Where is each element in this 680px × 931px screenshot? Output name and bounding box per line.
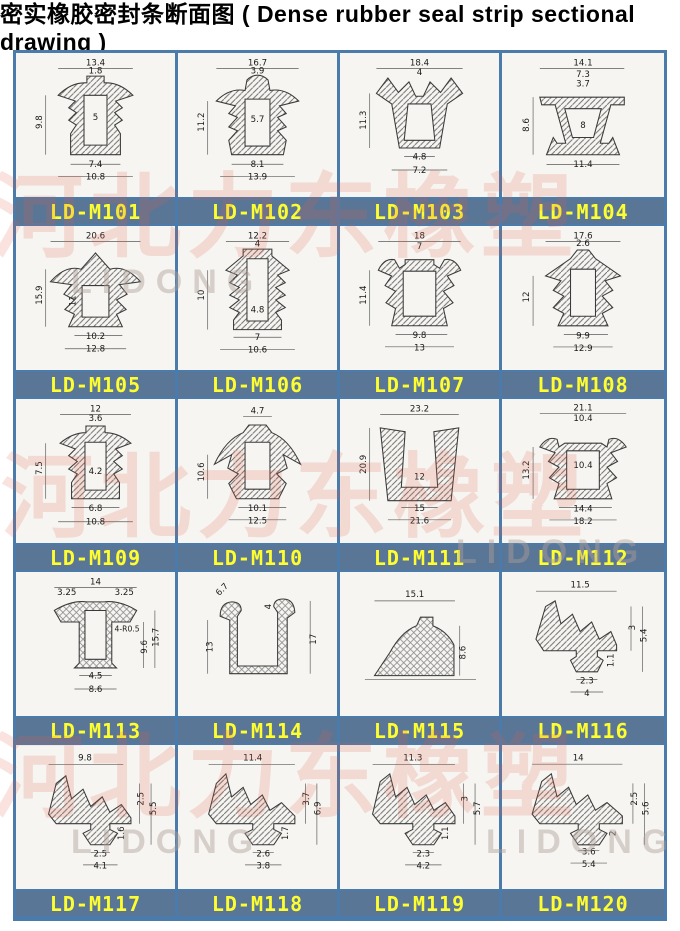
- dimension-label: 18.2: [573, 517, 592, 527]
- dimension-label: 7.5: [35, 461, 45, 475]
- dimension-label: 3.25: [115, 588, 134, 598]
- dimension-label: 15: [414, 504, 425, 514]
- dimension-label: 7: [255, 333, 260, 343]
- model-label: LD-M115: [374, 719, 465, 743]
- model-label: LD-M104: [537, 200, 628, 224]
- dimension-label: 7: [417, 242, 422, 252]
- dimension-label: 3: [460, 796, 470, 801]
- seal-profile-drawing: 143.253.2515.74-R0.59.64.58.6: [16, 572, 175, 716]
- seal-profile-shape: [380, 428, 459, 501]
- dimension-label: 6.8: [89, 504, 103, 514]
- model-label-bar-LD-M109: LD-M109: [16, 543, 178, 572]
- seal-profile-drawing: 11.535.41.12.34: [502, 572, 664, 716]
- dimension-label: 21.6: [410, 517, 429, 527]
- model-label: LD-M119: [374, 892, 465, 916]
- model-label-bar-LD-M116: LD-M116: [502, 716, 664, 745]
- drawing-cell-LD-M106: 12.24104.8710.6: [178, 226, 340, 370]
- dimension-label: 5.5: [149, 802, 159, 816]
- dimension-label: 11.5: [571, 580, 590, 590]
- model-label-bar-LD-M120: LD-M120: [502, 889, 664, 918]
- dimension-label: 12.8: [86, 345, 105, 355]
- model-label: LD-M103: [374, 200, 465, 224]
- dimension-label: 2.6: [576, 239, 590, 249]
- dimension-label: 3.7: [576, 80, 590, 90]
- model-label-bar-LD-M119: LD-M119: [340, 889, 502, 918]
- model-label-bar-LD-M110: LD-M110: [178, 543, 340, 572]
- seal-profile-drawing: 9.82.55.51.62.54.1: [16, 745, 175, 889]
- dimension-label: 11.4: [573, 160, 592, 170]
- seal-profile-drawing: 15.18.6: [340, 572, 499, 716]
- model-label-bar-LD-M107: LD-M107: [340, 370, 502, 399]
- model-label-bar-LD-M108: LD-M108: [502, 370, 664, 399]
- seal-profile-drawing: 6.741317: [178, 572, 337, 716]
- drawing-cell-LD-M119: 11.335.71.12.34.2: [340, 745, 502, 889]
- dimension-label: 2.5: [136, 792, 146, 806]
- dimension-label: 12.5: [248, 517, 267, 527]
- dimension-label: 4.2: [416, 862, 430, 872]
- dimension-label: 3.6: [582, 847, 596, 857]
- dimension-label: 14.1: [573, 58, 592, 68]
- dimension-label: 12: [90, 405, 101, 415]
- dimension-label: 3: [628, 625, 638, 631]
- model-label-bar-LD-M102: LD-M102: [178, 197, 340, 226]
- dimension-label: 12.9: [573, 344, 592, 354]
- seal-profile-drawing: 11.43.76.91.72.63.8: [178, 745, 337, 889]
- drawing-cell-LD-M110: 4.710.610.112.5: [178, 399, 340, 543]
- page-title: 密实橡胶密封条断面图 ( Dense rubber seal strip sec…: [0, 0, 680, 50]
- dimension-label: 4-R0.5: [115, 625, 140, 634]
- drawing-cell-LD-M116: 11.535.41.12.34: [502, 572, 664, 716]
- dimension-label: 14: [573, 753, 584, 763]
- dimension-label: 6.9: [314, 802, 324, 816]
- dimension-label: 8: [580, 121, 586, 131]
- dimension-label: 9.8: [413, 331, 427, 341]
- dimension-label: 11.4: [359, 286, 369, 305]
- dimension-label: 1.1: [441, 826, 451, 840]
- dimension-label: 3.9: [251, 66, 265, 76]
- dimension-label: 15.1: [405, 590, 424, 600]
- drawing-cell-LD-M114: 6.741317: [178, 572, 340, 716]
- seal-profile-drawing: 21.110.413.210.414.418.2: [502, 399, 664, 543]
- seal-profile-shape: [220, 599, 295, 674]
- dimension-label: 4: [417, 68, 422, 78]
- model-label-bar-LD-M104: LD-M104: [502, 197, 664, 226]
- seal-profile-drawing: 13.41.89.857.410.8: [16, 53, 175, 197]
- drawing-cell-LD-M120: 142.55.623.65.4: [502, 745, 664, 889]
- seal-profile-drawing: 17.62.6129.912.9: [502, 226, 664, 370]
- dimension-label: 7.3: [576, 70, 590, 80]
- dimension-label: 14: [90, 578, 101, 588]
- dimension-label: 13.2: [522, 460, 532, 479]
- model-label: LD-M120: [537, 892, 628, 916]
- model-label-bar-LD-M114: LD-M114: [178, 716, 340, 745]
- dimension-label: 4: [584, 689, 590, 699]
- seal-profile-drawing: 16.73.911.25.78.113.9: [178, 53, 337, 197]
- drawing-cell-LD-M108: 17.62.6129.912.9: [502, 226, 664, 370]
- dimension-label: 11.2: [197, 113, 207, 132]
- dimension-label: 10.8: [86, 173, 105, 183]
- drawing-cell-LD-M105: 20.615.91110.212.8: [16, 226, 178, 370]
- dimension-label: 10.6: [197, 462, 207, 481]
- dimension-label: 2.5: [630, 792, 640, 806]
- seal-profile-drawing: 20.615.91110.212.8: [16, 226, 175, 370]
- dimension-label: 3.6: [89, 414, 103, 424]
- drawing-cell-LD-M112: 21.110.413.210.414.418.2: [502, 399, 664, 543]
- dimension-label: 2.3: [580, 676, 594, 686]
- seal-profile-drawing: 18711.49.813: [340, 226, 499, 370]
- drawing-cell-LD-M117: 9.82.55.51.62.54.1: [16, 745, 178, 889]
- dimension-label: 5: [93, 113, 98, 123]
- dimension-label: 1.6: [117, 826, 127, 840]
- dimension-label: 5.7: [473, 802, 483, 816]
- model-label: LD-M111: [374, 546, 465, 570]
- model-label-bar-LD-M115: LD-M115: [340, 716, 502, 745]
- dimension-label: 23.2: [410, 405, 429, 415]
- dimension-label: 1.1: [607, 653, 617, 667]
- drawing-cell-LD-M103: 18.4411.34.87.2: [340, 53, 502, 197]
- seal-profile-shape: [226, 249, 289, 329]
- dimension-label: 6.7: [214, 582, 231, 599]
- dimension-label: 1.8: [89, 66, 103, 76]
- drawing-cell-LD-M113: 143.253.2515.74-R0.59.64.58.6: [16, 572, 178, 716]
- dimension-label: 4.8: [413, 152, 427, 162]
- dimension-label: 18: [414, 232, 425, 242]
- drawing-cell-LD-M115: 15.18.6: [340, 572, 502, 716]
- dimension-label: 7.4: [89, 160, 103, 170]
- dimension-label: 5.4: [639, 629, 649, 643]
- dimension-label: 2.5: [93, 849, 107, 859]
- dimension-label: 15.7: [152, 628, 162, 647]
- seal-profile-shape: [376, 78, 462, 148]
- drawing-cell-LD-M111: 23.220.9121521.6: [340, 399, 502, 543]
- dimension-label: 4: [264, 604, 274, 609]
- drawing-cell-LD-M104: 14.17.33.78.6811.4: [502, 53, 664, 197]
- dimension-label: 12: [522, 292, 532, 303]
- dimension-label: 17: [309, 634, 319, 645]
- dimension-label: 11.3: [359, 111, 369, 130]
- seal-profile-drawing: 23.220.9121521.6: [340, 399, 499, 543]
- model-label: LD-M116: [537, 719, 628, 743]
- dimension-label: 9.6: [140, 640, 150, 654]
- seal-profile-drawing: 4.710.610.112.5: [178, 399, 337, 543]
- dimension-label: 8.6: [522, 118, 532, 132]
- dimension-label: 2.6: [256, 849, 270, 859]
- dimension-label: 3.7: [302, 792, 312, 806]
- model-label: LD-M105: [50, 373, 141, 397]
- dimension-label: 21.1: [573, 404, 592, 414]
- seal-profile-shape: [536, 601, 617, 672]
- seal-profile-shape: [50, 253, 140, 327]
- dimension-label: 9.8: [35, 115, 45, 129]
- dimension-label: 10.1: [248, 504, 267, 514]
- seal-profile-shape: [214, 425, 300, 499]
- seal-profile-shape: [60, 426, 131, 499]
- seal-profile-drawing: 18.4411.34.87.2: [340, 53, 499, 197]
- model-label-bar-LD-M106: LD-M106: [178, 370, 340, 399]
- dimension-label: 3.25: [57, 588, 76, 598]
- model-label: LD-M117: [50, 892, 141, 916]
- seal-profile-shape: [54, 602, 136, 668]
- dimension-label: 4: [255, 239, 260, 249]
- model-label: LD-M112: [537, 546, 628, 570]
- model-label: LD-M102: [212, 200, 303, 224]
- dimension-label: 10: [197, 290, 207, 301]
- model-label-bar-LD-M113: LD-M113: [16, 716, 178, 745]
- model-label: LD-M110: [212, 546, 303, 570]
- model-label-bar-LD-M117: LD-M117: [16, 889, 178, 918]
- dimension-label: 8.1: [251, 160, 265, 170]
- model-label-bar-LD-M118: LD-M118: [178, 889, 340, 918]
- model-label: LD-M108: [537, 373, 628, 397]
- dimension-label: 8.6: [89, 685, 103, 695]
- dimension-label: 12: [414, 473, 425, 483]
- dimension-label: 10.4: [573, 461, 592, 471]
- dimension-label: 4.5: [89, 671, 103, 681]
- seal-profile-shape: [378, 259, 460, 325]
- model-label: LD-M114: [212, 719, 303, 743]
- seal-profile-drawing: 11.335.71.12.34.2: [340, 745, 499, 889]
- seal-profile-drawing: 123.67.54.26.810.8: [16, 399, 175, 543]
- dimension-label: 7.2: [413, 166, 427, 176]
- catalog-grid: 13.41.89.857.410.816.73.911.25.78.113.91…: [13, 50, 667, 921]
- seal-profile-drawing: 14.17.33.78.6811.4: [502, 53, 664, 197]
- model-label: LD-M113: [50, 719, 141, 743]
- dimension-label: 2: [609, 831, 619, 837]
- drawing-cell-LD-M109: 123.67.54.26.810.8: [16, 399, 178, 543]
- dimension-label: 5.6: [641, 802, 651, 816]
- dimension-label: 4.8: [251, 305, 265, 315]
- drawing-cell-LD-M101: 13.41.89.857.410.8: [16, 53, 178, 197]
- dimension-label: 14.4: [573, 504, 592, 514]
- seal-profile-drawing: 12.24104.8710.6: [178, 226, 337, 370]
- model-label-bar-LD-M101: LD-M101: [16, 197, 178, 226]
- drawing-cell-LD-M118: 11.43.76.91.72.63.8: [178, 745, 340, 889]
- dimension-label: 15.9: [35, 286, 45, 305]
- dimension-label: 4.7: [251, 407, 265, 417]
- model-label: LD-M101: [50, 200, 141, 224]
- dimension-label: 10.8: [86, 518, 105, 528]
- dimension-label: 5.7: [251, 115, 265, 125]
- model-label: LD-M118: [212, 892, 303, 916]
- dimension-label: 11: [68, 295, 78, 306]
- dimension-label: 3.8: [256, 862, 270, 872]
- seal-profile-shape: [374, 617, 454, 675]
- dimension-label: 4.1: [93, 862, 107, 872]
- dimension-label: 13: [414, 344, 425, 354]
- dimension-label: 8.6: [458, 646, 468, 660]
- dimension-label: 9.8: [78, 753, 92, 763]
- seal-profile-drawing: 142.55.623.65.4: [502, 745, 664, 889]
- seal-profile-shape: [546, 250, 621, 326]
- dimension-label: 10.2: [86, 332, 105, 342]
- model-label-bar-LD-M111: LD-M111: [340, 543, 502, 572]
- model-label: LD-M109: [50, 546, 141, 570]
- model-label: LD-M107: [374, 373, 465, 397]
- dimension-label: 5.4: [582, 860, 596, 870]
- model-label-bar-LD-M103: LD-M103: [340, 197, 502, 226]
- dimension-label: 10.6: [248, 346, 267, 356]
- drawing-cell-LD-M102: 16.73.911.25.78.113.9: [178, 53, 340, 197]
- dimension-label: 20.6: [86, 232, 105, 242]
- dimension-label: 18.4: [410, 59, 429, 69]
- dimension-label: 1.7: [281, 826, 291, 840]
- dimension-label: 20.9: [359, 455, 369, 474]
- dimension-label: 13: [205, 641, 215, 652]
- model-label: LD-M106: [212, 373, 303, 397]
- model-label-bar-LD-M112: LD-M112: [502, 543, 664, 572]
- dimension-label: 10.4: [573, 414, 592, 424]
- dimension-label: 11.4: [243, 753, 262, 763]
- dimension-label: 11.3: [403, 753, 422, 763]
- drawing-cell-LD-M107: 18711.49.813: [340, 226, 502, 370]
- dimension-label: 13.9: [248, 173, 267, 183]
- dimension-label: 4.2: [89, 467, 103, 477]
- dimension-label: 9.9: [576, 331, 590, 341]
- dimension-label: 2.3: [416, 849, 430, 859]
- model-label-bar-LD-M105: LD-M105: [16, 370, 178, 399]
